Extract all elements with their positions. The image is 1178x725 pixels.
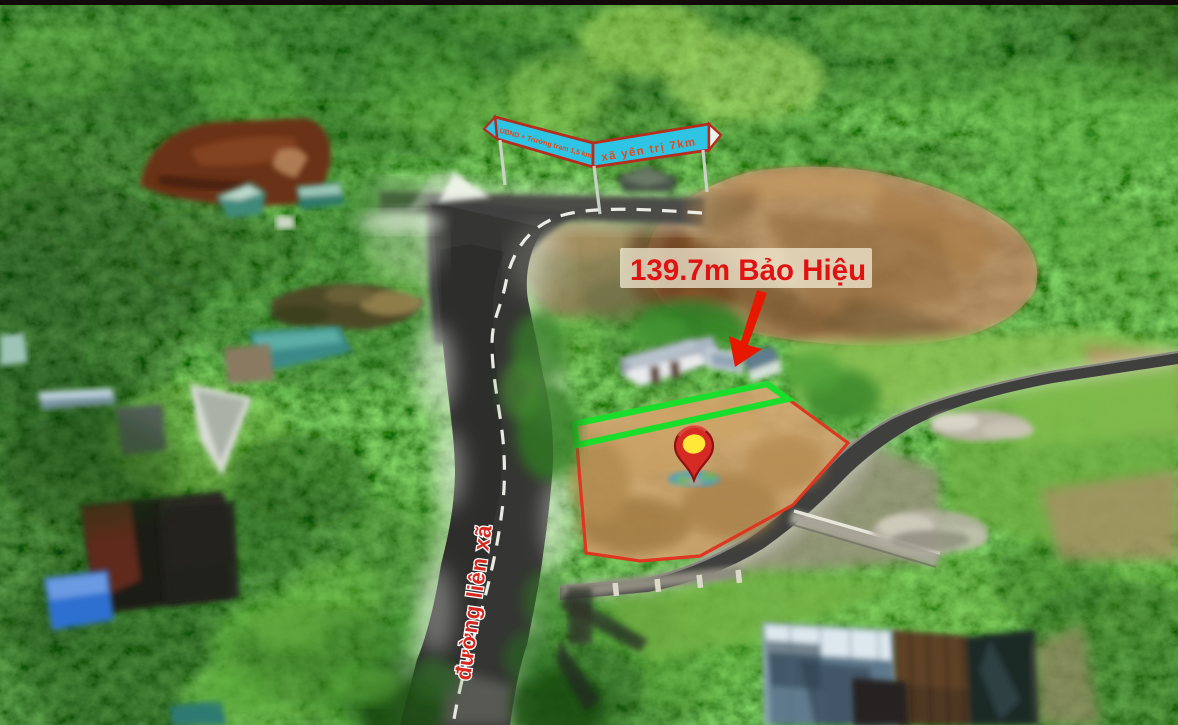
svg-text:139.7m Bảo Hiệu: 139.7m Bảo Hiệu xyxy=(630,254,866,287)
